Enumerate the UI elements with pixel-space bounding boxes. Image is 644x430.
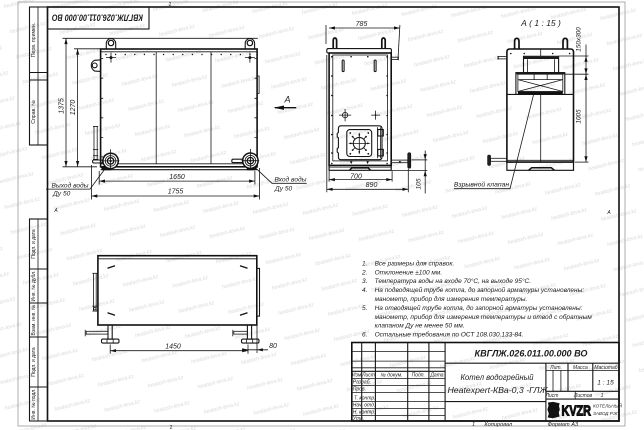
svg-text:А ( 1 : 15 ): А ( 1 : 15 ) <box>520 18 561 28</box>
svg-text:КОТЕЛЬНЫЙ: КОТЕЛЬНЫЙ <box>593 402 623 409</box>
svg-text:Н. контр.: Н. контр. <box>353 410 376 416</box>
svg-text:манометр, прибор для измерения: манометр, прибор для измерения температу… <box>375 295 528 303</box>
svg-text:700: 700 <box>350 173 362 180</box>
svg-text:1650: 1650 <box>169 174 185 181</box>
svg-text:Листов: Листов <box>573 393 593 399</box>
svg-text:2: 2 <box>170 425 173 430</box>
svg-text:Разраб.: Разраб. <box>353 379 371 385</box>
svg-text:Взрывной клапан: Взрывной клапан <box>454 181 509 189</box>
svg-text:Выход воды: Выход воды <box>51 181 88 189</box>
svg-text:1: 1 <box>601 393 604 399</box>
svg-text:5.На отводящей трубе котла, до: 5.На отводящей трубе котла, до запорной … <box>362 304 583 312</box>
svg-text:1755: 1755 <box>168 189 184 196</box>
svg-text:Инв. № подл.: Инв. № подл. <box>31 388 37 419</box>
svg-text:Инв. № дубл.: Инв. № дубл. <box>31 271 37 302</box>
svg-text:Перв. примен.: Перв. примен. <box>31 23 37 58</box>
svg-text:Формат А3: Формат А3 <box>547 422 578 428</box>
svg-text:манометр, прибор для измерения: манометр, прибор для измерения температу… <box>375 313 593 321</box>
svg-text:150х300: 150х300 <box>576 27 583 52</box>
svg-text:Нач. отд.: Нач. отд. <box>353 403 375 409</box>
svg-text:Изм: Изм <box>352 372 362 378</box>
svg-text:ЗАВОД РЭП: ЗАВОД РЭП <box>593 411 620 416</box>
svg-text:Котел водогрейный: Котел водогрейный <box>461 373 534 382</box>
svg-text:785: 785 <box>356 21 368 28</box>
svg-text:Утв.: Утв. <box>353 416 364 422</box>
svg-text:КВГЛЖ.026.011.00.000 ВО: КВГЛЖ.026.011.00.000 ВО <box>52 13 143 23</box>
svg-text:Ду 50: Ду 50 <box>52 190 71 197</box>
svg-text:1: 1 <box>472 422 475 428</box>
svg-text:Лист: Лист <box>545 393 559 399</box>
svg-text:Дата: Дата <box>429 372 443 378</box>
svg-text:№ докум.: № докум. <box>380 372 402 378</box>
svg-text:2: 2 <box>169 2 172 8</box>
svg-text:1005: 1005 <box>576 109 583 124</box>
svg-text:клапаном Ду не менее 50 мм.: клапаном Ду не менее 50 мм. <box>375 323 465 330</box>
svg-text:Копировал: Копировал <box>484 422 513 428</box>
svg-text:КВГЛЖ.026.011.00.000 ВО: КВГЛЖ.026.011.00.000 ВО <box>475 349 588 359</box>
svg-text:А: А <box>606 210 611 216</box>
svg-text:Т. контр.: Т. контр. <box>354 396 376 402</box>
svg-text:105: 105 <box>415 178 422 189</box>
svg-text:Ду 50: Ду 50 <box>274 185 293 192</box>
svg-text:Подп.: Подп. <box>412 372 425 378</box>
svg-text:4.На подводящей трубе котла, д: 4.На подводящей трубе котла, до запорной… <box>362 286 584 294</box>
svg-text:3.Температура воды на входе 70: 3.Температура воды на входе 70°С, на вых… <box>362 277 531 285</box>
svg-text:Взам. инв. №: Взам. инв. № <box>31 305 37 336</box>
svg-text:6.Остальные требования по ОСТ: 6.Остальные требования по ОСТ 108.030.13… <box>362 331 524 339</box>
svg-text:А: А <box>283 95 290 105</box>
svg-text:Лист: Лист <box>361 372 375 378</box>
svg-text:1270: 1270 <box>70 100 77 116</box>
svg-text:Подп. и дата: Подп. и дата <box>31 229 37 259</box>
svg-text:KVZR: KVZR <box>562 403 592 420</box>
svg-text:Пров.: Пров. <box>353 387 366 393</box>
svg-text:Масса: Масса <box>573 365 588 371</box>
svg-text:1375: 1375 <box>58 98 65 114</box>
svg-text:1450: 1450 <box>165 343 181 350</box>
svg-text:Справ. №: Справ. № <box>31 100 37 124</box>
svg-text:Масштаб: Масштаб <box>594 365 618 371</box>
svg-text:Heatexpert-КВа-0,3 -ГЛЖ: Heatexpert-КВа-0,3 -ГЛЖ <box>448 386 549 395</box>
svg-text:80: 80 <box>269 343 277 350</box>
svg-text:Подп. и дата: Подп. и дата <box>31 347 37 377</box>
svg-text:Вход воды: Вход воды <box>274 176 306 184</box>
svg-text:Лит.: Лит. <box>549 365 562 371</box>
svg-text:1.Все размеры для справок.: 1.Все размеры для справок. <box>362 259 454 267</box>
svg-text:А: А <box>53 208 58 214</box>
svg-text:1 : 15: 1 : 15 <box>597 380 614 387</box>
svg-text:890: 890 <box>366 182 378 189</box>
